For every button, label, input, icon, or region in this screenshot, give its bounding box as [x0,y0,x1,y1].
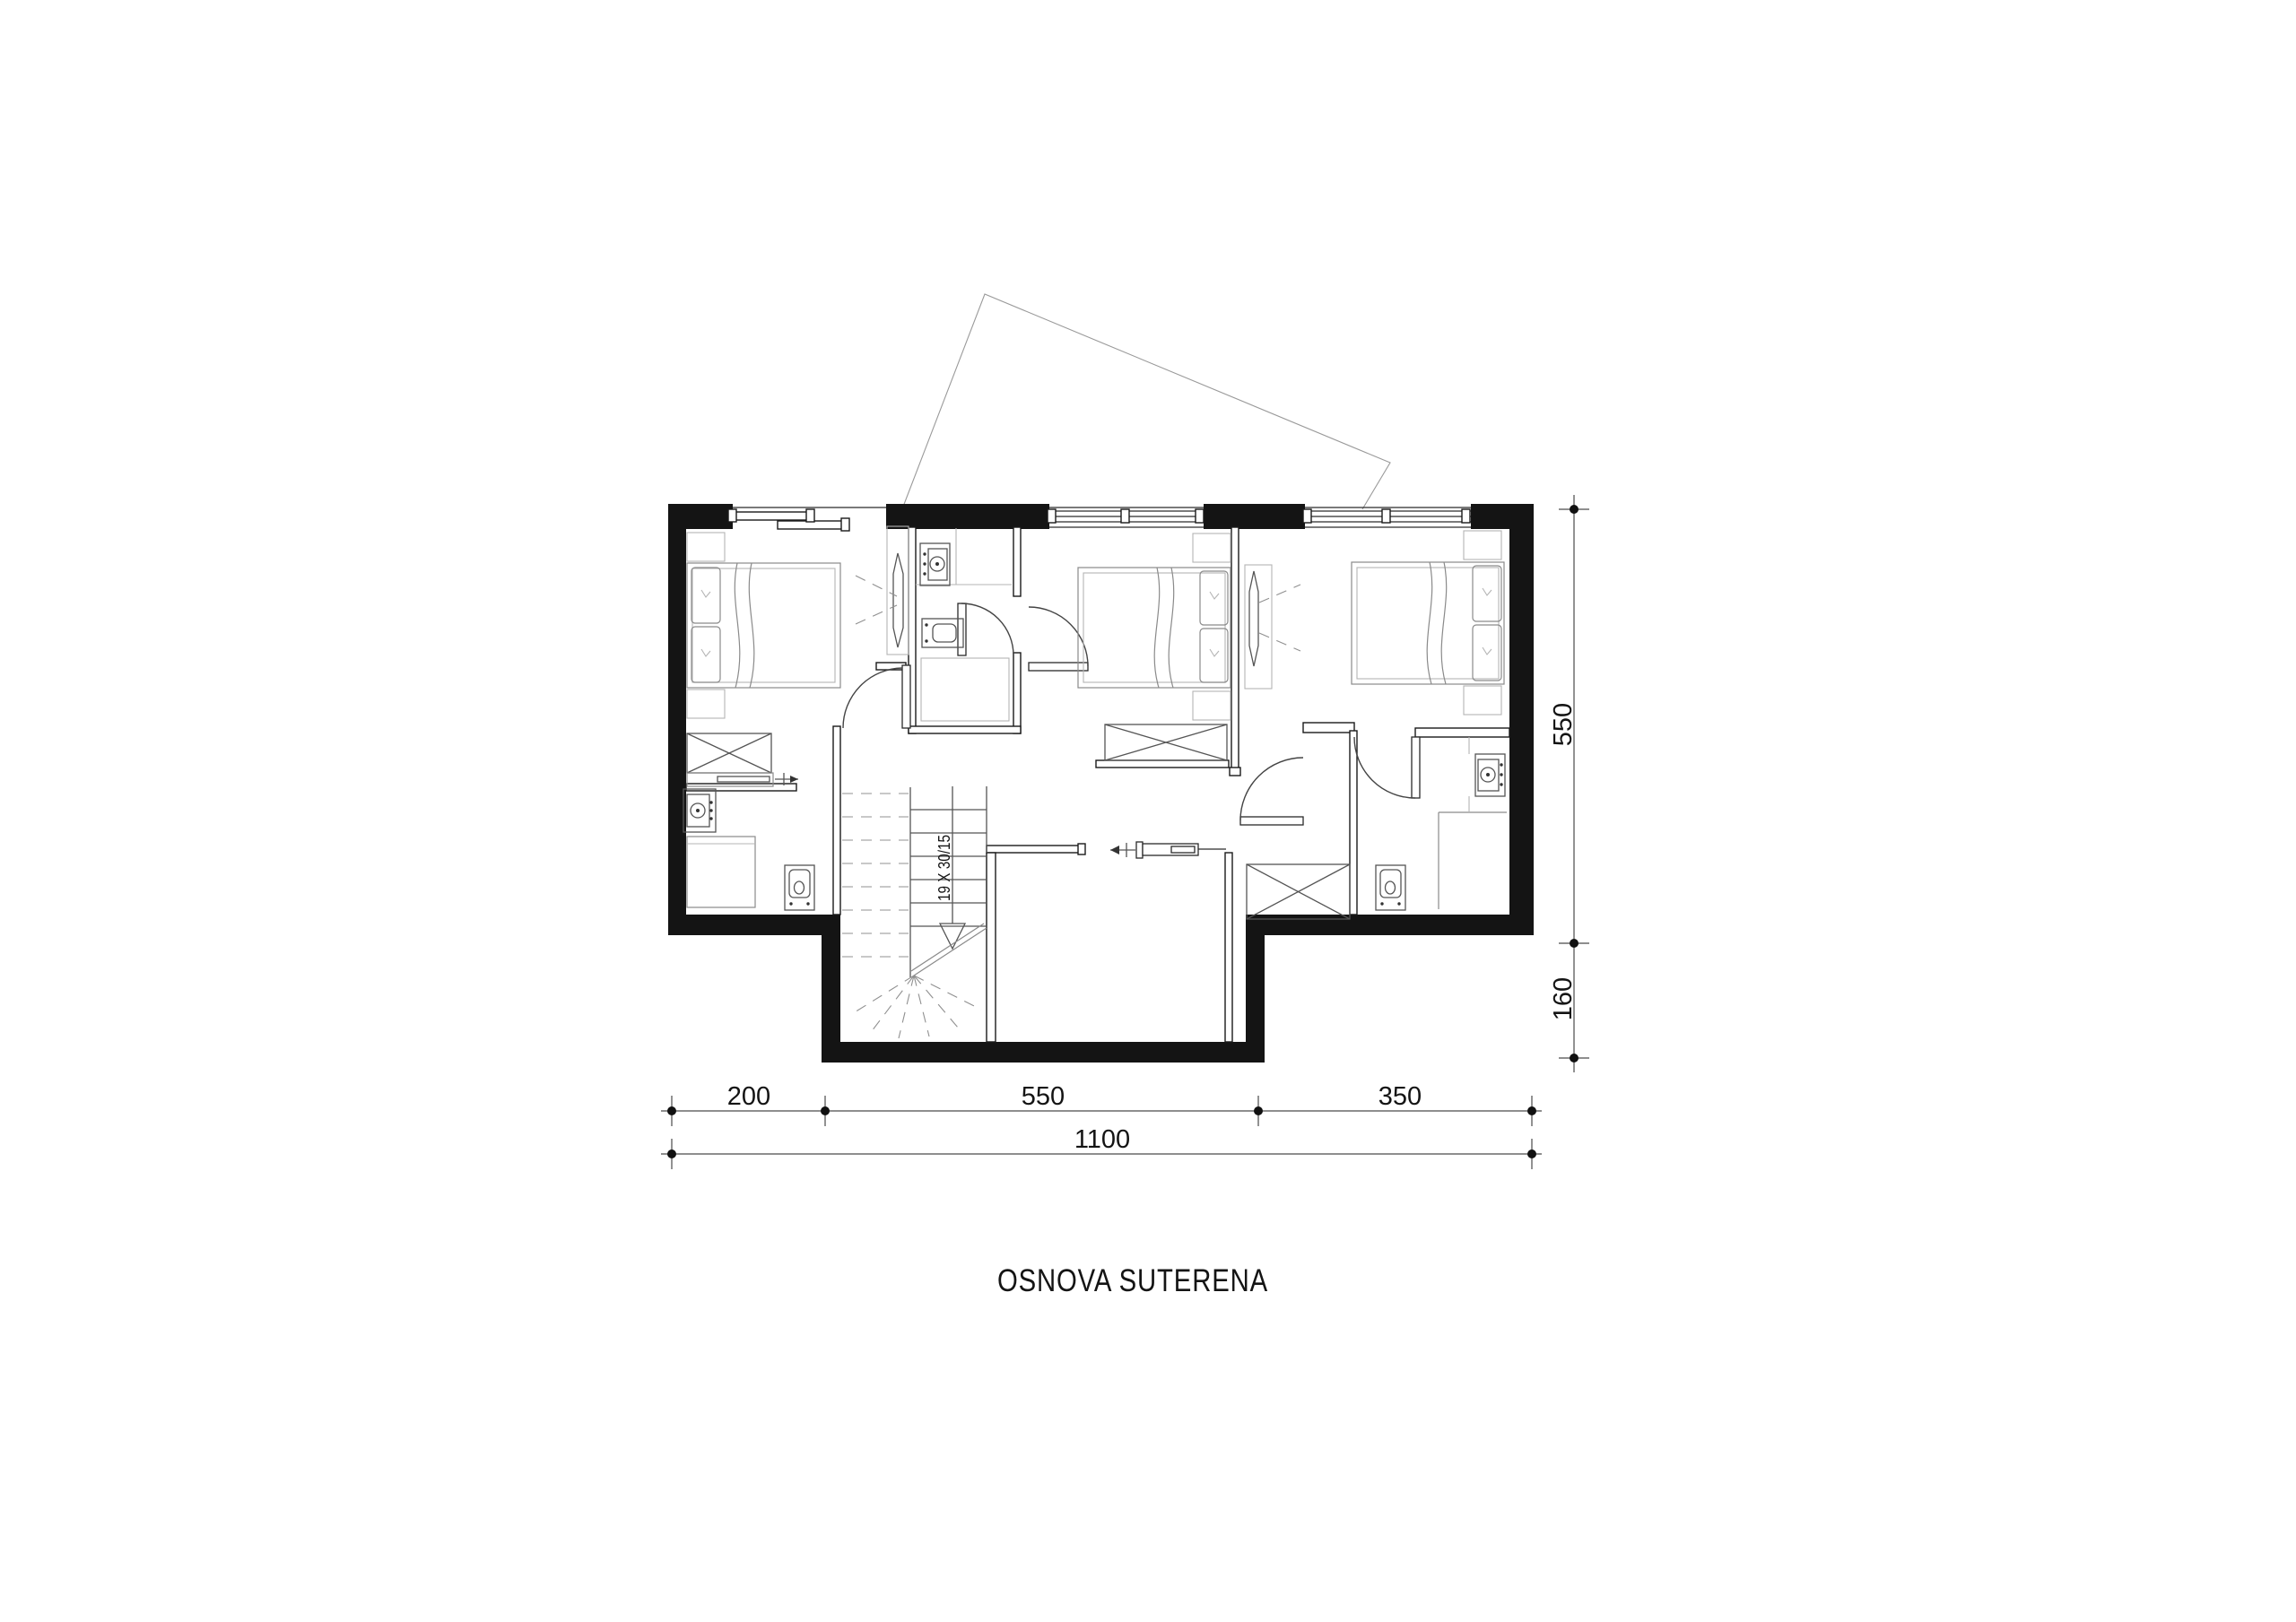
right-bed-pillow-1 [1473,566,1501,621]
window-middle [1048,509,1204,527]
door-left-bedroom-leaf [902,665,910,728]
window-left-clip-3 [841,518,849,531]
core-east-wall-lower [1013,653,1021,733]
dim-label-right-160: 160 [1549,977,1578,1020]
right-bath-north-wall [1415,728,1509,737]
left-nightstand-bottom [687,690,725,718]
right-bath-vanity [1439,737,1507,909]
window-middle-clip-3 [1196,509,1204,523]
right-closet [1247,864,1350,919]
wall-tv-icon [1249,571,1258,666]
window-left [728,509,849,531]
bottom-dimension-row-2: 1100 [661,1125,1542,1169]
site-trapezoid-outline [903,294,1390,509]
left-bed-frame [687,563,840,688]
left-bed [687,563,840,688]
tv-sight-line-2 [856,605,897,624]
middle-bed-blanket-fold-1 [1169,568,1174,688]
window-right-clip-2 [1382,509,1390,523]
left-tv-niche [887,526,909,655]
right-bathroom [1376,737,1507,910]
floor-plan-drawing: 19 X 30/15 [0,0,2296,1622]
left-tv-screen-icon [717,776,770,782]
door-right-bathroom [1354,737,1420,798]
right-bed [1352,562,1504,684]
sliding-door-jamb [1136,842,1143,858]
core-sink [922,619,963,647]
windows [728,509,1471,531]
wall-pier-a [886,504,1049,529]
stair-break-line-1 [914,928,987,976]
window-left-sash-outer [733,512,813,520]
interior-walls [686,527,1509,1042]
stair-upper-flight-dashed [842,794,909,957]
right-bath-toilet [1376,865,1405,910]
middle-bedroom [1078,533,1300,760]
door-left-bedroom-swing-arc [843,668,902,728]
tv-sight-line-2 [1259,633,1300,651]
stair-winder-rays-dashed [850,976,981,1038]
middle-nightstand-bottom [1193,691,1231,720]
door-middle-bedroom [1029,607,1088,671]
middle-nightstand-top [1193,533,1231,562]
middle-right-partition-wall [1231,527,1239,773]
left-bed-mattress [692,568,835,682]
middle-bed-blanket-fold-2 [1154,568,1160,688]
storage-north-wall [987,846,1083,853]
wall-bottom-right [1246,915,1534,935]
door-right-bedroom-leaf [1240,817,1303,825]
dimension-annotations: 200 550 350 1100 550 160 [661,495,1589,1169]
window-middle-clip-1 [1048,509,1056,523]
core-east-wall-upper [1013,527,1021,596]
right-nightstand-bottom [1464,686,1501,715]
site-boundary-line [903,294,1390,509]
right-bath-west-wall [1350,731,1357,915]
sliding-door-direction-icon [1110,843,1135,857]
console-arrow-icon [790,776,798,783]
left-wardrobe [687,733,771,773]
sink-icon [922,619,963,647]
floor-plan-page: 19 X 30/15 [0,0,2296,1622]
window-right [1303,509,1471,527]
sliding-door-panel [1143,844,1198,855]
left-bedroom [687,526,909,786]
left-bathroom [683,789,814,910]
right-bed-pillow-2 [1473,625,1501,681]
left-nightstand-top [687,533,725,561]
sliding-door-storage [1110,842,1226,858]
door-left-bedroom [843,665,910,728]
dim-label-1100: 1100 [1074,1125,1130,1154]
staircase: 19 X 30/15 [842,786,987,1038]
stair-east-wall [987,853,996,1042]
left-bath-east-wall [833,726,840,915]
arrow-head-icon [1110,846,1119,854]
door-right-bedroom-swing-arc [1240,758,1303,820]
left-bath-north-wall [686,784,796,791]
right-nightstand-top [1464,531,1501,559]
door-core-bathroom [958,603,1013,655]
door-right-bedroom [1240,758,1303,825]
wall-bottom-left [668,915,839,935]
shower-tray [687,837,755,907]
wall-step-right [1246,915,1265,1063]
core-shower-inner [921,658,1009,721]
partition-end-cap [1230,768,1240,776]
wall-tv-icon [893,553,903,647]
dim-label-550: 550 [1022,1082,1065,1111]
middle-wall-tv [1245,565,1300,689]
right-bedroom-south-wall [1303,723,1354,733]
middle-wardrobe [1105,724,1227,760]
wall-step-left [822,915,840,1063]
right-bed-blanket-fold-1 [1441,562,1447,684]
storage-wall-cap [1078,844,1085,854]
left-bed-pillow-2 [691,627,720,682]
dim-label-350: 350 [1378,1082,1422,1111]
right-bedroom [1247,531,1504,919]
wall-pier-b [1204,504,1305,529]
left-bed-pillow-1 [691,568,720,623]
door-middle-bedroom-leaf [1029,663,1088,671]
right-dimension-column: 550 160 [1549,495,1589,1072]
window-right-clip-1 [1303,509,1311,523]
left-bed-blanket-fold-2 [749,563,754,688]
door-right-bathroom-swing-arc [1354,737,1415,798]
core-south-wall [909,726,1021,733]
right-bath-washbasin [1475,754,1505,796]
stair-break-line-2 [911,924,984,971]
core-washbasin [920,543,950,585]
exterior-walls [668,504,1534,1063]
window-left-clip-2 [806,509,814,522]
wall-right [1509,504,1534,935]
stair-label: 19 X 30/15 [935,835,953,901]
middle-bed-frame [1078,568,1231,688]
left-wall-tv [856,526,909,655]
dim-label-right-550: 550 [1549,703,1578,746]
middle-bedroom-south-wall [1096,760,1229,768]
left-bath-shower [687,837,755,907]
door-middle-bedroom-swing-arc [1029,607,1088,666]
door-right-bathroom-leaf [1412,737,1420,798]
wall-bottom-extension [822,1042,1265,1063]
tv-sight-line-1 [856,576,897,596]
bottom-dimension-row-1: 200 550 350 [661,1082,1542,1126]
window-left-clip-1 [728,509,736,522]
right-bed-blanket-fold-2 [1427,562,1432,684]
dim-label-200: 200 [727,1082,770,1111]
drawing-title: OSNOVA SUTERENA [997,1263,1268,1298]
left-bath-toilet [785,865,814,910]
wall-left [668,504,686,935]
middle-bed [1078,568,1231,688]
left-bath-washbasin [683,789,716,832]
door-core-bathroom-swing-arc [961,603,1013,655]
window-right-clip-3 [1462,509,1470,523]
central-core [916,528,1012,721]
window-middle-clip-2 [1121,509,1129,523]
left-bed-blanket-fold-1 [735,563,740,688]
tv-sight-line-1 [1259,585,1300,603]
storage-east-wall [1225,853,1232,1042]
